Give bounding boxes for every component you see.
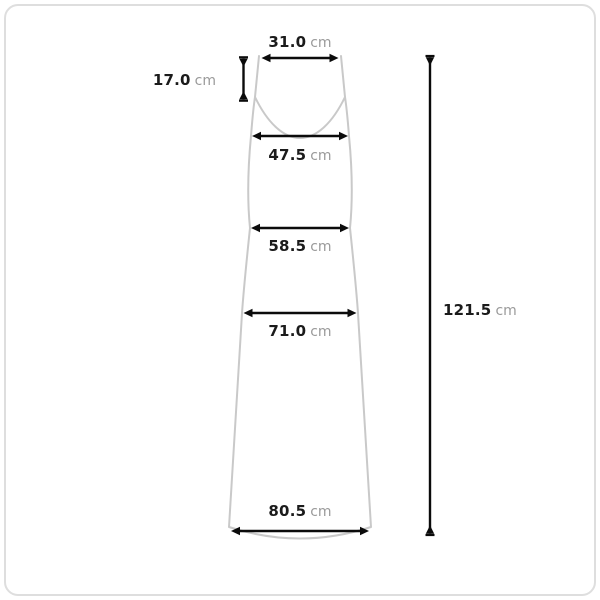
arrow-left-icon <box>262 54 271 62</box>
dim-strap-length <box>239 57 248 100</box>
measurement-diagram: 31.0cm 17.0cm 47.5cm 58.5cm 71.0cm 80.5c… <box>0 0 600 600</box>
total-length-value: 121.5 <box>443 301 491 319</box>
hem-width-unit: cm <box>310 504 331 520</box>
arrow-left-icon <box>252 132 261 140</box>
dim-waist-width <box>251 224 349 232</box>
dress-outline <box>229 56 371 539</box>
label-hem-width: 80.5cm <box>150 502 450 521</box>
waist-width-value: 58.5 <box>268 237 306 255</box>
arrow-right-icon <box>340 224 349 232</box>
hem-width-value: 80.5 <box>268 502 306 520</box>
label-hip-width: 71.0cm <box>150 322 450 341</box>
dim-top-width <box>262 54 339 62</box>
label-bust-width: 47.5cm <box>150 146 450 165</box>
dim-hip-width <box>244 309 357 317</box>
hip-width-unit: cm <box>310 324 331 340</box>
total-length-unit: cm <box>495 303 516 319</box>
label-strap-length: 17.0cm <box>153 71 216 90</box>
strap-length-value: 17.0 <box>153 71 191 89</box>
top-width-unit: cm <box>310 35 331 51</box>
dress-silhouette <box>229 56 371 539</box>
top-width-value: 31.0 <box>268 33 306 51</box>
label-total-length: 121.5cm <box>443 301 517 320</box>
arrow-right-icon <box>348 309 357 317</box>
arrow-left-icon <box>244 309 253 317</box>
dim-total-length <box>426 56 435 535</box>
dress-neckline <box>255 97 345 138</box>
bust-width-unit: cm <box>310 148 331 164</box>
strap-length-unit: cm <box>195 73 216 89</box>
bust-width-value: 47.5 <box>268 146 306 164</box>
arrow-down-icon <box>239 91 247 99</box>
waist-width-unit: cm <box>310 239 331 255</box>
hip-width-value: 71.0 <box>268 322 306 340</box>
arrow-right-icon <box>339 132 348 140</box>
arrow-right-icon <box>330 54 339 62</box>
arrow-left-icon <box>251 224 260 232</box>
label-waist-width: 58.5cm <box>150 237 450 256</box>
arrow-down-icon <box>426 525 434 534</box>
label-top-width: 31.0cm <box>150 33 450 52</box>
